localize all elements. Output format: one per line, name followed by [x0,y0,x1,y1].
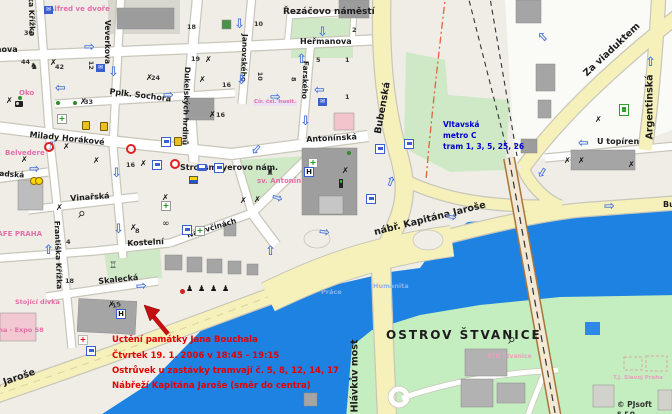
tram-stop-icon [404,139,414,149]
tram-stop-icon [152,160,162,170]
one-way-arrow: ⇧ [265,245,276,258]
one-way-arrow: ⇩ [234,18,245,31]
restaurant-icon: ✗ [628,161,635,169]
place-label-strossmayerovo-nam: Strossmayerovo nám. [180,164,278,172]
place-label-tj-slavoj: T.J. Slavoj Praha [613,376,663,382]
monument-figure-icon: ♟ [198,285,205,293]
tram-stop-icon [161,137,171,147]
restaurant-icon: ✗ [199,76,206,84]
house-number: 10 [256,72,263,81]
street-label-hermanova-west: Heřmanova [0,46,18,54]
hospital-icon: H [304,167,314,177]
swimming-pool-icon [585,322,600,335]
one-way-arrow: ⇦ [314,84,325,97]
copyright-notice: © PJsoft s.r.o. [617,400,672,414]
one-way-arrow: ⇩ [113,223,124,236]
place-label-kafe-praha: KAFE PRAHA [0,231,42,238]
one-way-arrow: ⇨ [604,200,615,213]
place-label-ostrov-stvanice: OSTROV ŠTVANICE [386,329,542,341]
park-tree-icon [347,151,351,155]
restaurant-icon: ✗ [93,157,100,165]
one-way-arrow: ⇨ [270,91,281,104]
one-way-arrow: ⇨ [163,89,174,102]
transit-station-name: Vltavská [443,121,479,129]
house-number: 5 [316,57,321,64]
restaurant-icon: ✗ [578,157,585,165]
one-way-arrow: ⇨ [84,41,95,54]
museum-icon: ♖ [109,262,117,271]
one-way-arrow: ⇧ [645,56,656,69]
fuel-station-icon [619,104,629,116]
flag-icon [189,176,198,184]
restaurant-icon: ✗ [146,74,153,82]
first-aid-icon: + [78,335,88,345]
place-label-alfred-ve-dvore: Alfred ve dvoře [49,6,110,13]
house-number: 8 [290,77,297,82]
house-number: 2 [352,27,357,34]
house-number: 16 [222,82,231,89]
one-way-arrow: ⇩ [317,26,328,39]
event-note-line4: Nábřeží Kapitána Jaroše (směr do centra) [112,382,311,391]
restaurant-icon: ✗ [50,59,57,67]
red-circle-marker [44,142,54,152]
street-label-u-topiren: U topíren [597,138,639,146]
street-label-rezacovo-namesti: Řezáčovo náměstí [283,8,375,17]
pub-icon [174,137,182,146]
one-way-arrow: ⇦ [55,82,66,95]
event-note-line1: Uctění památky Jana Bouchala [112,336,258,345]
monument-figure-icon: ♟ [222,285,229,293]
place-label-stojici-divka: Stojící dívka [15,299,60,306]
transit-station-trams: tram 1, 3, 5, 25, 26 [443,143,524,151]
tram-stop-icon [86,346,96,356]
pharmacy-icon: + [195,226,205,236]
one-way-arrow: ⇨ [445,210,458,224]
house-number: 18 [187,24,196,31]
house-number: 30 [24,30,33,37]
place-label-sv-antonin: sv. Antonín [257,178,301,185]
restaurant-icon: ✗ [205,56,212,64]
street-label-veverkova: Veverkova [103,20,111,64]
pub-icon [100,122,108,131]
restaurant-icon: ✗ [63,143,70,151]
tram-stop-icon [182,225,192,235]
house-number: 16 [216,112,225,119]
one-way-arrow: ⇨ [135,280,147,294]
monument-figure-icon: ♟ [186,285,193,293]
restaurant-icon: ✗ [140,160,147,168]
restaurant-icon: ✗ [342,167,349,175]
tram-stop-icon [366,194,376,204]
one-way-arrow: ⇩ [111,167,122,180]
park-tree-icon [18,96,22,100]
one-way-arrow: ⇦ [578,137,589,150]
street-label-argentinska: Argentinská [645,75,655,140]
car-icon [197,164,207,171]
red-circle-marker [170,159,180,169]
monument-figure-icon: ♟ [210,285,217,293]
street-label-dukelskych-hrdinu: Dukelských hrdinů [181,67,191,146]
theater-masks-icon [30,177,41,183]
house-number: 1 [345,57,350,64]
house-number: 12 [87,61,94,70]
monument-marker [180,289,185,294]
one-way-arrow: ⇩ [236,74,247,87]
one-way-arrow: ⇧ [296,53,307,66]
post-office-icon: ✉ [96,64,105,72]
place-label-praha-expo-58: Praha - Expo 58 [0,327,44,334]
event-note-line2: Čtvrtek 19. 1. 2006 v 18:45 - 19:15 [112,352,279,361]
house-number: 18 [65,278,74,285]
map-canvas[interactable]: Řezáčovo náměstí Heřmanova Heřmanova Ppl… [0,0,672,414]
place-label-std-stvanice: STD Štvanice [487,354,532,360]
restaurant-icon: ✗ [130,224,137,232]
one-way-arrow: ⇨ [29,163,40,176]
restaurant-icon: ✗ [56,204,63,212]
one-way-arrow: ⇧ [43,244,54,257]
street-label-frantiska-krizka-south: Františka Křížka [53,221,63,290]
river-label-prace: Práce [321,289,342,296]
camera-icon [15,101,23,107]
restaurant-icon: ✗ [21,156,28,164]
pharmacy-icon: + [57,114,67,124]
map-base-graphics [0,0,672,414]
house-number: 44 [21,59,30,66]
park-tree-icon [73,101,77,105]
pub-icon [82,121,90,130]
church-icon: ♜ [266,169,274,178]
park-tree-icon [56,101,60,105]
transit-station-metro: metro C [443,132,476,140]
house-number: 10 [254,21,263,28]
restaurant-icon: ✗ [80,98,87,106]
river-label-humanita: Humanita [373,283,409,290]
theater-icon: ✉ [44,6,53,14]
one-way-arrow: ⇩ [108,66,119,79]
one-way-arrow: ⇨ [318,225,331,239]
statue-icon: ♞ [30,63,38,72]
red-circle-marker [126,144,136,154]
restaurant-icon: ✗ [564,157,571,165]
restaurant-icon: ✗ [595,116,602,124]
house-number: 16 [126,162,135,169]
tram-stop-icon [375,144,385,154]
hotel-icon: H [116,309,126,319]
house-number: 4 [66,239,71,246]
traffic-light-icon [339,179,343,188]
restaurant-icon: ✗ [240,197,247,205]
interchange-island [413,230,443,250]
event-note-line3: Ostrůvek u zastávky tramvají č. 5, 8, 12… [112,367,339,376]
tram-stop-icon [214,163,224,173]
street-label-hlavkuv-most: Hlávkův most [350,339,360,412]
pharmacy-icon: + [161,201,171,211]
house-number: 1 [345,94,350,101]
street-label-letohradska: Letohradská [0,168,24,179]
restaurant-icon: ✗ [209,111,216,119]
house-number: 19 [191,56,200,63]
post-office-icon: ✉ [318,98,327,106]
restaurant-icon: ✗ [6,97,13,105]
cyclist-icon: ∞ [162,220,170,229]
street-label-bubenske-nabrezi: Bubenské nábřeží [663,201,672,209]
restaurant-icon: ✗ [108,301,115,309]
restaurant-icon: ✗ [254,196,261,204]
one-way-arrow: ⇩ [300,115,311,128]
